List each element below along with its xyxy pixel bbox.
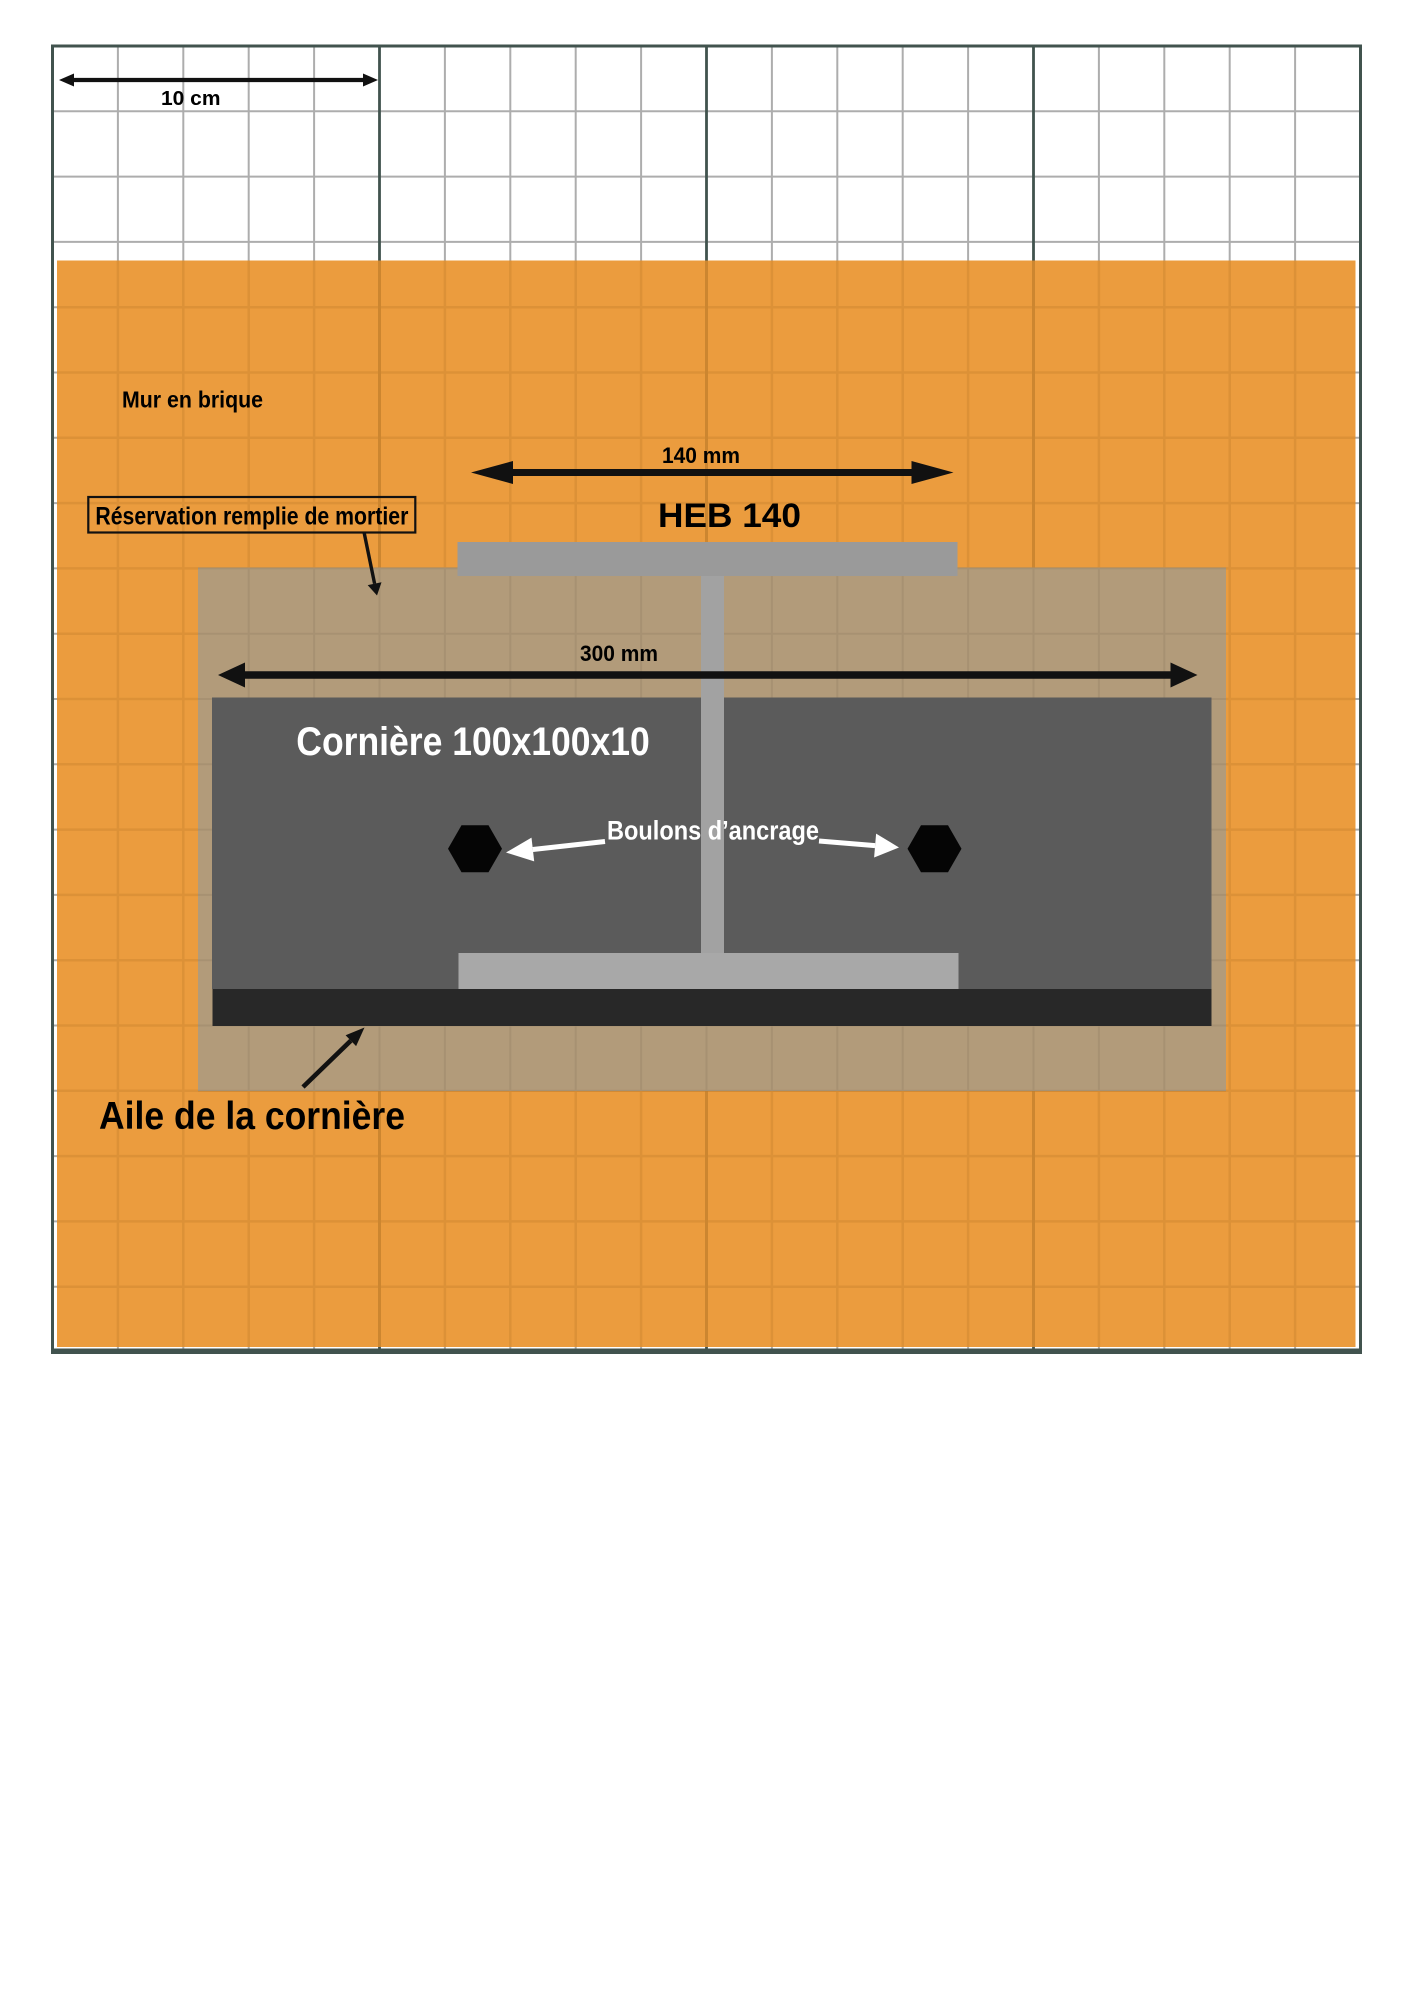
svg-text:Réservation remplie de mortier: Réservation remplie de mortier bbox=[95, 503, 408, 531]
svg-text:10 cm: 10 cm bbox=[161, 87, 221, 110]
svg-text:Boulons d’ancrage: Boulons d’ancrage bbox=[607, 816, 819, 846]
svg-text:300 mm: 300 mm bbox=[580, 641, 658, 666]
svg-text:Mur en brique: Mur en brique bbox=[122, 387, 263, 413]
svg-text:Aile de la cornière: Aile de la cornière bbox=[99, 1095, 405, 1138]
svg-text:Cornière 100x100x10: Cornière 100x100x10 bbox=[296, 720, 650, 764]
svg-text:HEB 140: HEB 140 bbox=[658, 497, 801, 535]
svg-text:140 mm: 140 mm bbox=[662, 443, 740, 468]
